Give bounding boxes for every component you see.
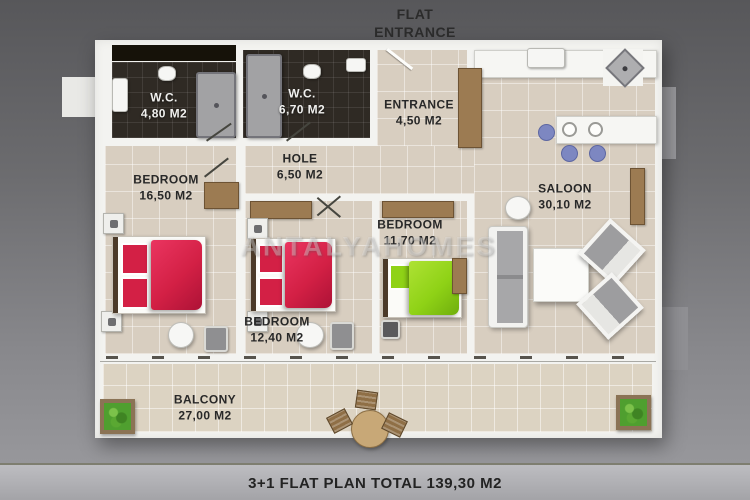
bedroom-small-nightstand: [452, 258, 467, 294]
bedroom-small-wardrobe: [382, 201, 454, 218]
room-label-entrance: ENTRANCE 4,50 M2: [384, 97, 454, 128]
room-area: 4,80 M2: [141, 106, 187, 122]
bed-pillow: [389, 264, 411, 290]
bedroom-large-bed: [112, 236, 206, 314]
bedroom-small-bed: [382, 258, 462, 318]
room-label-wc1: W.C. 4,80 M2: [141, 90, 187, 121]
room-name: W.C.: [141, 90, 187, 106]
wc2-sink: [346, 58, 366, 72]
room-area: 6,70 M2: [279, 102, 325, 118]
bar-burner-1: [562, 122, 577, 137]
bedroom-large-chair: [204, 326, 228, 352]
sink-basin: [605, 48, 645, 88]
flat-entrance-line2: ENTRANCE: [374, 24, 456, 40]
bar-burner-2: [588, 122, 603, 137]
bedroom-large-wardrobe: [204, 182, 239, 209]
balcony-plant-right: [616, 395, 651, 430]
wc2-toilet: [303, 64, 321, 79]
bed-pillow: [121, 277, 149, 309]
bedroom-middle-wardrobe: [250, 201, 312, 219]
wc1-shower-cabin: [196, 72, 236, 138]
balcony-plant-left: [100, 399, 135, 434]
sofa-cushions: [497, 231, 523, 323]
room-name: BALCONY: [174, 392, 236, 408]
bed-pillow: [258, 277, 284, 307]
bar-stool-2: [561, 145, 578, 162]
bedroom-large-table: [168, 322, 194, 348]
bedroom-middle-chair: [330, 322, 354, 350]
flat-entrance-label: FLAT ENTRANCE: [374, 6, 456, 41]
saloon-tv-cabinet: [630, 168, 645, 225]
shaft-block: [112, 45, 236, 61]
saloon-side-table: [505, 196, 531, 220]
bed-headboard: [383, 259, 388, 317]
wc1-sink: [112, 78, 128, 112]
room-area: 27,00 M2: [174, 408, 236, 424]
bed-headboard: [113, 237, 118, 313]
floor-plan-image: FLAT ENTRANCE: [0, 0, 750, 500]
bedroom-large-nightstand-2: [101, 311, 122, 332]
bed-pillow: [121, 243, 149, 275]
room-area: 4,50 M2: [384, 113, 454, 129]
room-label-balcony: BALCONY 27,00 M2: [174, 392, 236, 423]
bar-stool-3: [589, 145, 606, 162]
room-label-wc2: W.C. 6,70 M2: [279, 86, 325, 117]
wc2-shower-cabin: [246, 54, 282, 138]
entrance-wardrobe: [458, 68, 482, 148]
bedroom-large-nightstand-1: [103, 213, 124, 234]
room-name: HOLE: [277, 151, 323, 167]
bar-stool-1: [538, 124, 555, 141]
exterior-ledge-right-bottom: [662, 307, 688, 370]
room-name: W.C.: [279, 86, 325, 102]
room-name: SALOON: [538, 181, 592, 197]
plan-total-caption: 3+1 FLAT PLAN TOTAL 139,30 M2: [248, 475, 502, 492]
room-label-saloon: SALOON 30,10 M2: [538, 181, 592, 212]
bedroom-small-dresser: [381, 320, 400, 339]
room-area: 16,50 M2: [133, 188, 198, 204]
wc1-toilet: [158, 66, 176, 81]
flat-entrance-line1: FLAT: [397, 6, 434, 22]
room-label-bedroom-large: BEDROOM 16,50 M2: [133, 172, 198, 203]
watermark-text: ANTALYAHOMES: [240, 232, 497, 263]
room-name: ENTRANCE: [384, 97, 454, 113]
room-area: 12,40 M2: [244, 330, 309, 346]
balcony-window-frames: [106, 356, 650, 359]
room-name: BEDROOM: [244, 314, 309, 330]
kitchen-cooktop: [527, 48, 565, 68]
room-name: BEDROOM: [133, 172, 198, 188]
footer-caption-bar: 3+1 FLAT PLAN TOTAL 139,30 M2: [0, 463, 750, 500]
exterior-ledge-left: [62, 77, 95, 117]
balcony-chair-1: [355, 390, 378, 411]
exterior-ledge-right-top: [662, 87, 676, 159]
room-area: 6,50 M2: [277, 167, 323, 183]
balcony-window-line: [100, 361, 656, 362]
kitchen-corner-sink: [603, 49, 643, 86]
room-area: 30,10 M2: [538, 197, 592, 213]
room-label-hole: HOLE 6,50 M2: [277, 151, 323, 182]
bed-duvet: [151, 240, 202, 310]
room-label-bedroom-middle: BEDROOM 12,40 M2: [244, 314, 309, 345]
